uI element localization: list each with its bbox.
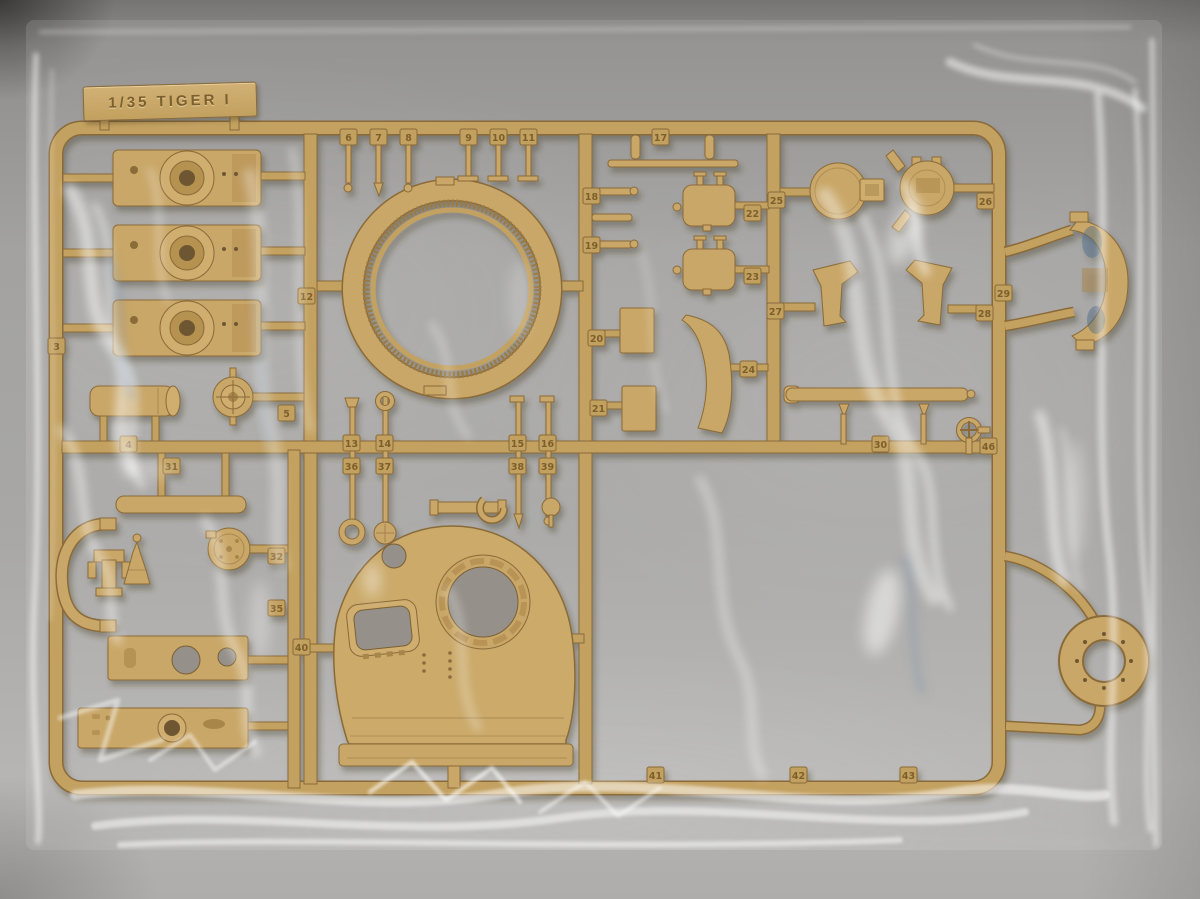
part-number: 7 (375, 133, 382, 144)
part-number: 29 (997, 289, 1010, 300)
part-number: 20 (590, 334, 604, 345)
part-number: 36 (345, 462, 359, 473)
turret-roof-part (300, 526, 584, 788)
part-number: 30 (874, 440, 888, 451)
sprue-label: 1/35 TIGER I (108, 91, 232, 111)
part-number: 28 (978, 309, 992, 320)
part-number: 4 (125, 440, 132, 451)
cylinder-drum-part (90, 386, 180, 441)
part-number: 40 (295, 643, 309, 654)
part-number: 12 (300, 292, 313, 303)
slotted-plate-part-1 (108, 636, 288, 680)
part-number: 32 (270, 552, 283, 563)
photo-stage: 3431512678910111336143715381639171819202… (0, 0, 1200, 899)
slotted-plate-part-2 (78, 708, 288, 748)
part-number: 10 (492, 133, 506, 144)
part-number: 9 (465, 133, 472, 144)
part-number: 17 (654, 133, 667, 144)
hatch-ring-part (1005, 556, 1137, 730)
part-number: 39 (541, 462, 554, 473)
part-number: 3 (53, 342, 60, 353)
part-number: 46 (982, 442, 996, 453)
part-number: 21 (592, 404, 605, 415)
part-number: 19 (585, 241, 598, 252)
part-number: 25 (770, 196, 783, 207)
part-number: 31 (165, 462, 178, 473)
part-number: 11 (522, 133, 535, 144)
clamp-bracket-part (88, 550, 130, 596)
part-number: 18 (585, 192, 599, 203)
part-number: 26 (979, 197, 993, 208)
part-number: 15 (511, 439, 524, 450)
part-number: 16 (541, 439, 555, 450)
part-number: 43 (902, 771, 915, 782)
cleaning-rod-part (784, 386, 975, 444)
part-number: 42 (792, 771, 805, 782)
part-number: 6 (345, 133, 352, 144)
cupola-hatch-part (886, 150, 994, 232)
linkage-pin-parts (342, 394, 560, 544)
part-number: 24 (742, 365, 756, 376)
mantlet-arc-part (1005, 212, 1128, 350)
rod-part (116, 453, 246, 513)
part-number: 22 (746, 209, 759, 220)
sprue: 3431512678910111336143715381639171819202… (0, 0, 1200, 899)
part-number: 8 (405, 133, 412, 144)
part-number: 5 (283, 409, 290, 420)
part-number: 23 (746, 272, 759, 283)
stacked-cone-part (124, 534, 150, 584)
part-number: 14 (378, 439, 392, 450)
sprue-label-plate: 1/35 TIGER I (83, 82, 258, 122)
part-number: 35 (270, 604, 283, 615)
part-number: 27 (769, 307, 782, 318)
part-number: 13 (345, 439, 358, 450)
bracket-parts (780, 260, 992, 326)
part-number: 37 (378, 462, 391, 473)
part-number: 38 (511, 462, 525, 473)
hub-plate-parts (63, 150, 305, 356)
round-hatch-lid-part (780, 163, 884, 219)
part-number: 41 (649, 771, 662, 782)
turret-ring-gear-part (317, 177, 583, 395)
